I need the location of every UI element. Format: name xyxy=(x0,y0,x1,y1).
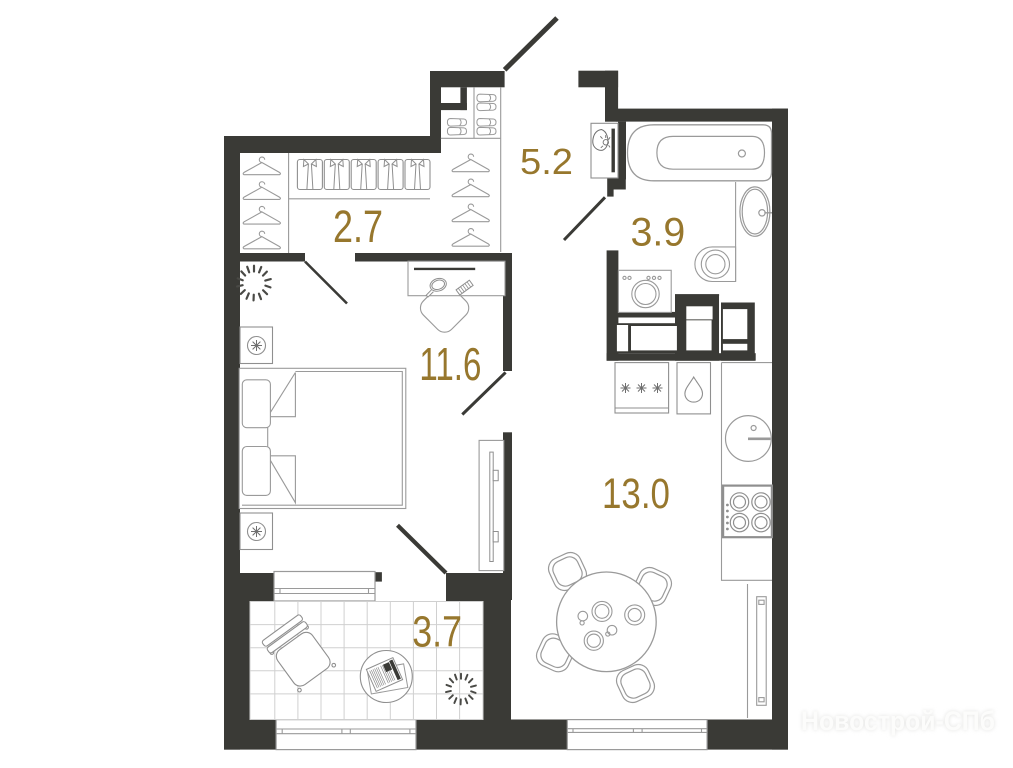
svg-text:3.9: 3.9 xyxy=(631,211,686,255)
svg-text:3.7: 3.7 xyxy=(412,608,462,656)
svg-text:Новострой-СПб: Новострой-СПб xyxy=(801,706,995,736)
svg-text:5.2: 5.2 xyxy=(520,141,573,182)
svg-text:13.0: 13.0 xyxy=(602,470,670,518)
svg-text:2.7: 2.7 xyxy=(333,201,383,252)
svg-text:11.6: 11.6 xyxy=(419,338,481,390)
